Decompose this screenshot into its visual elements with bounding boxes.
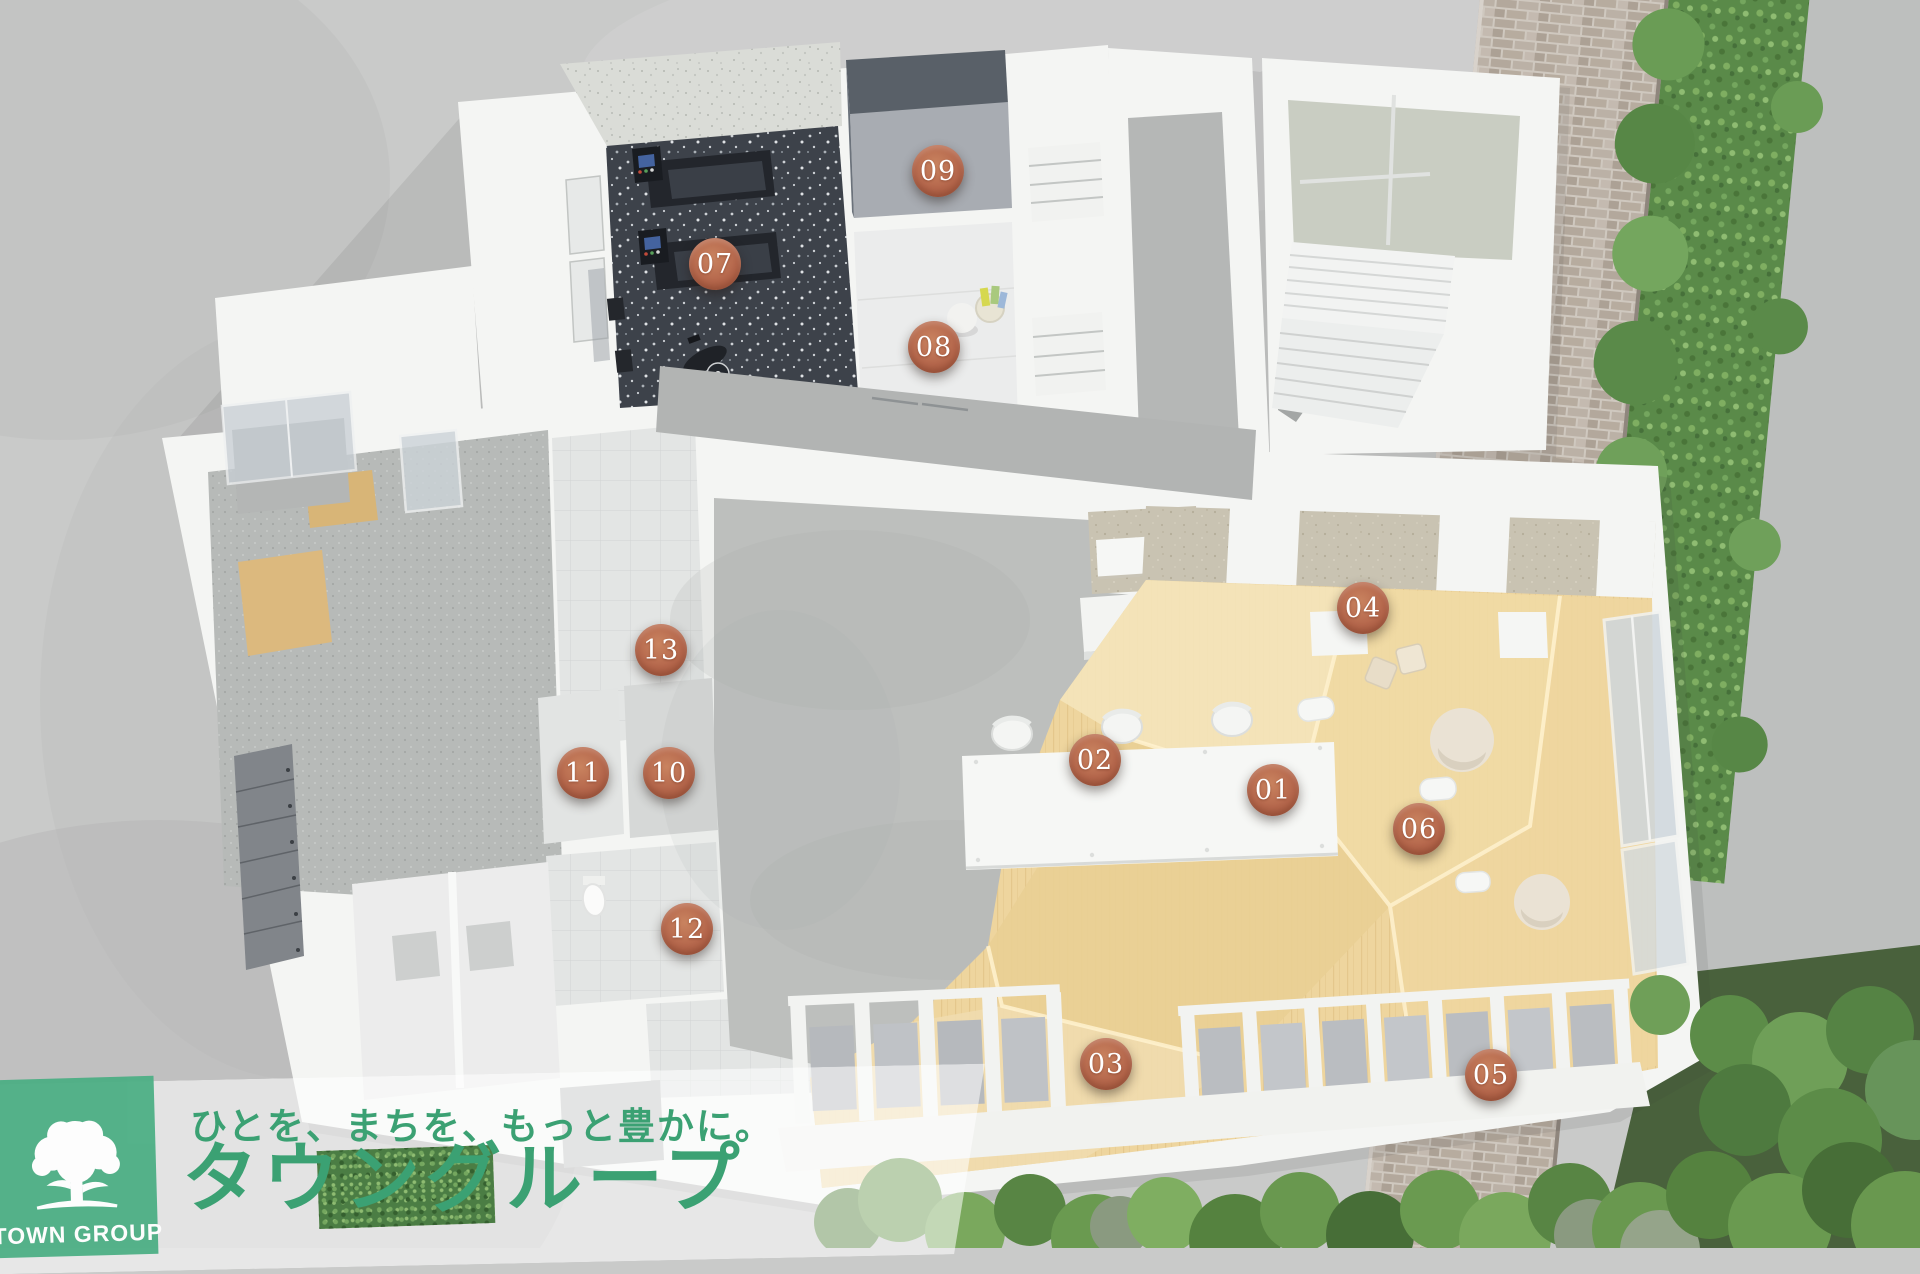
side-table (1310, 610, 1368, 656)
topright-room (1288, 95, 1520, 260)
cushion (1395, 643, 1427, 675)
pouf (1430, 708, 1494, 772)
chair (1212, 704, 1252, 736)
pouf (1514, 874, 1570, 930)
logo-square: TOWN GROUP (0, 1076, 158, 1258)
floorplan-render: 01020304050607080910111213 ひとを、まちを、もっと豊か… (0, 0, 1920, 1248)
side-table (1498, 612, 1548, 658)
storage-room-09 (846, 50, 1012, 218)
tree-icon (14, 1109, 137, 1220)
company-brand-name: タウングループ (182, 1142, 744, 1218)
corridor-floor (1128, 112, 1240, 464)
logo-text: TOWN GROUP (0, 1219, 164, 1251)
glass-door (400, 430, 462, 512)
stall-11 (538, 688, 624, 844)
chair (992, 718, 1032, 750)
scene-svg (0, 0, 1920, 1248)
ball (947, 303, 977, 333)
chair (1102, 711, 1142, 743)
wood-bench (238, 550, 332, 656)
locker-bank (234, 744, 304, 970)
